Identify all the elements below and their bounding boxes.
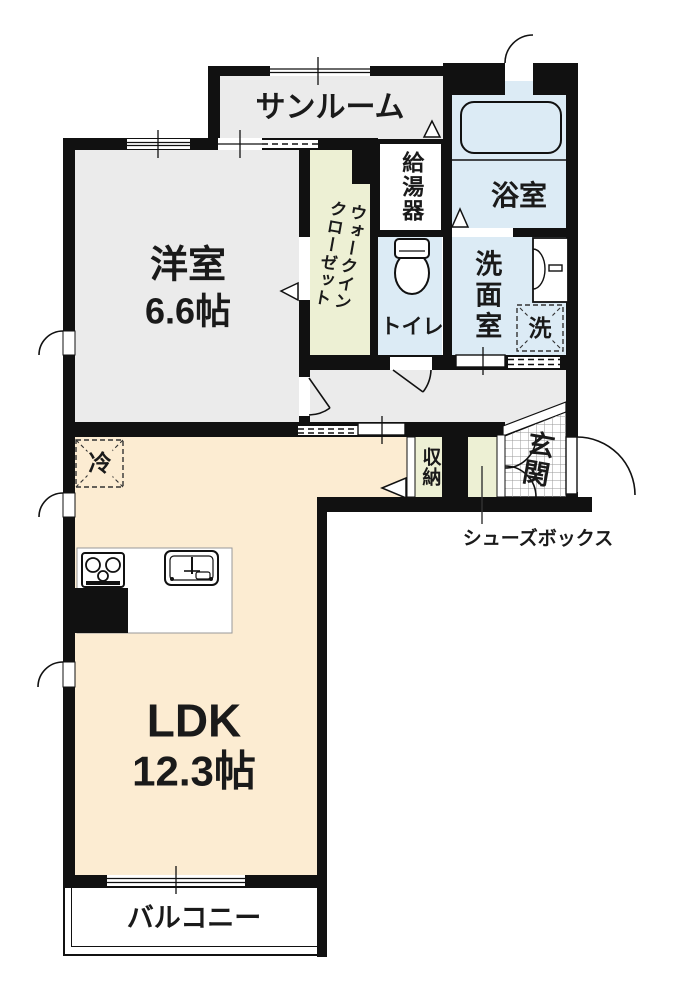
western-room-label: 洋室 6.6帖 [145, 244, 231, 333]
bath-exterior-door-opening [505, 81, 533, 95]
shoe-box-label: シューズボックス [463, 529, 613, 552]
sliding-track [262, 140, 318, 148]
entrance-door-leaf [566, 437, 577, 494]
bathroom-label: 浴室 [491, 179, 547, 213]
casement-window [63, 493, 75, 517]
wall [352, 150, 370, 184]
refrigerator-space-label: 冷 [88, 450, 113, 478]
window [127, 139, 190, 149]
casement-arc [39, 331, 63, 355]
wall [566, 95, 578, 437]
bath-exterior-door-arc [505, 35, 533, 63]
door-opening [299, 377, 310, 416]
ldk-name: LDK [132, 694, 256, 747]
sliding-window [218, 138, 262, 150]
wall [63, 422, 505, 437]
window [270, 66, 370, 76]
entrance-door-arc [577, 437, 635, 495]
wall [370, 138, 378, 368]
casement-arc [39, 493, 63, 517]
closet-opening [299, 237, 310, 300]
wall [443, 66, 452, 368]
sunroom-label: サンルーム [255, 90, 404, 126]
wall [513, 228, 568, 237]
wall [208, 76, 220, 140]
toilet-label: トイレ [381, 314, 444, 339]
sliding-track [298, 426, 358, 435]
ldk-label: LDK 12.3帖 [132, 694, 256, 795]
wall [442, 422, 468, 497]
bath-exterior-door-opening [505, 63, 533, 81]
storage-label: 収納 [418, 447, 441, 487]
washroom-label: 洗面室 [470, 250, 502, 343]
wall [317, 497, 592, 512]
shoe-box-doors [497, 435, 505, 497]
ldk-size: 12.3帖 [132, 747, 256, 795]
balcony-label: バルコニー [127, 902, 261, 934]
laundry-space-label: 洗 [528, 315, 553, 343]
sliding-track [508, 357, 560, 368]
casement-window [63, 662, 75, 687]
ldk-floor-upper [75, 437, 407, 497]
western-room-size: 6.6帖 [145, 289, 231, 332]
door-opening [390, 357, 432, 370]
shoe-box-floor [468, 437, 497, 497]
ldk-floor-lower [75, 497, 317, 875]
hallway-floor [310, 368, 568, 426]
floor-plan: サンルーム 洋室 6.6帖 ウォークイン クローゼット 給湯器 浴室 トイレ 洗… [0, 0, 676, 1000]
casement-arc [38, 662, 63, 687]
water-heater-label: 給湯器 [398, 151, 424, 223]
casement-window [63, 331, 75, 355]
entrance-label: 玄関 [515, 428, 557, 491]
storage-opening [407, 437, 415, 497]
western-room-name: 洋室 [145, 244, 231, 290]
